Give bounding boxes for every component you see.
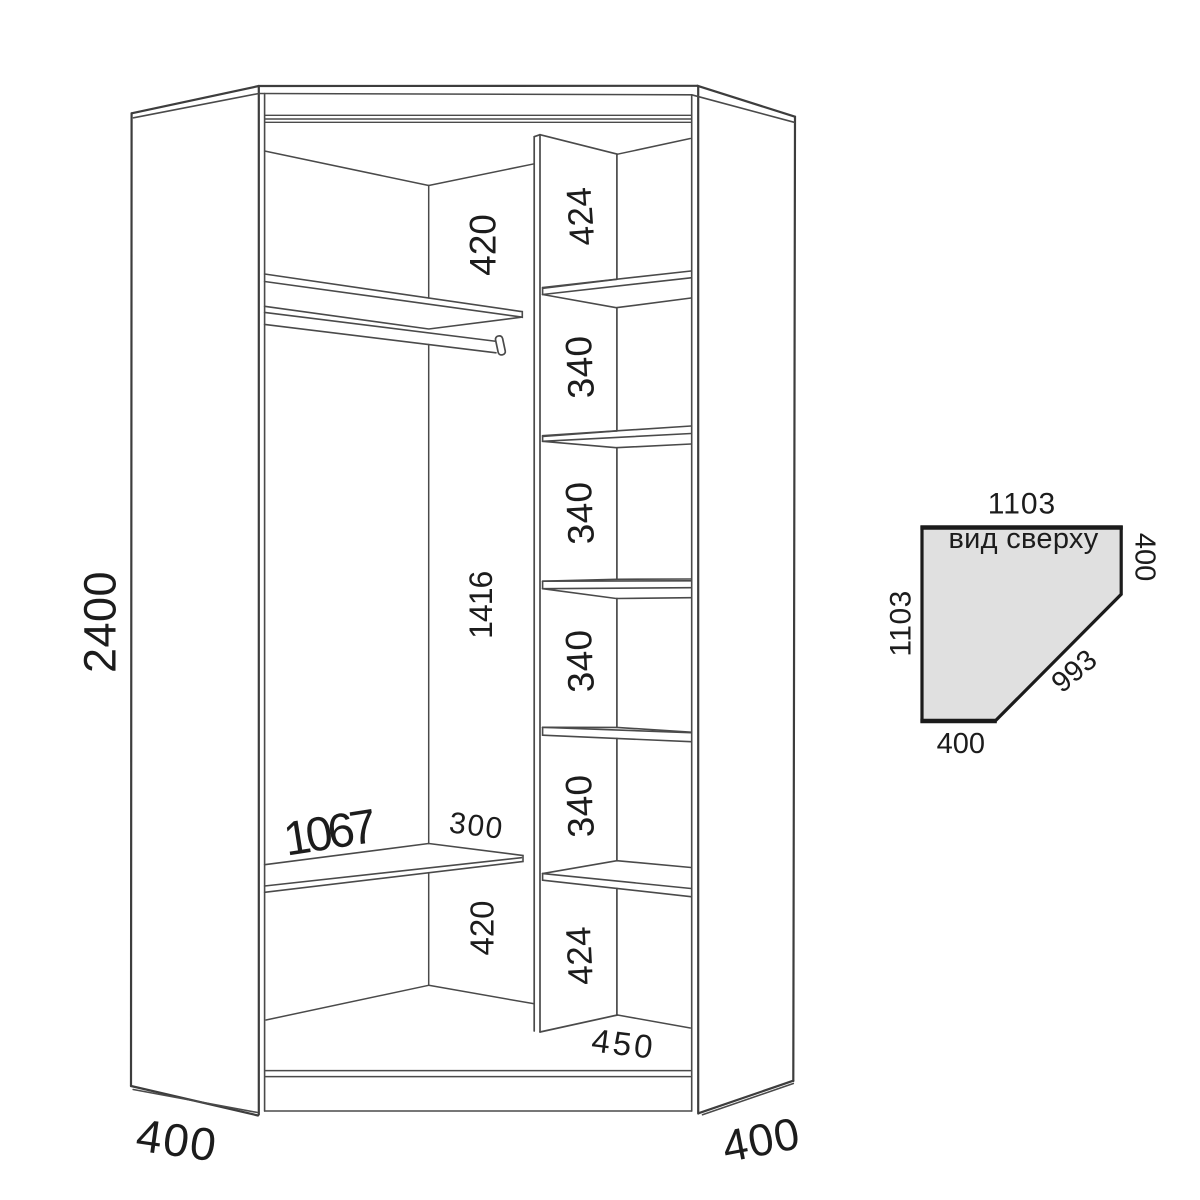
svg-text:340: 340	[558, 334, 602, 399]
svg-text:1103: 1103	[885, 590, 918, 657]
svg-text:300: 300	[447, 806, 505, 845]
svg-text:вид сверху: вид сверху	[948, 523, 1098, 555]
svg-text:424: 424	[559, 926, 601, 986]
svg-text:450: 450	[590, 1021, 658, 1066]
svg-text:420: 420	[464, 900, 501, 955]
svg-text:1416: 1416	[463, 572, 499, 639]
svg-text:420: 420	[463, 214, 504, 276]
svg-text:340: 340	[558, 773, 602, 838]
svg-text:424: 424	[560, 186, 603, 247]
svg-text:400: 400	[937, 728, 985, 760]
svg-text:2400: 2400	[75, 571, 126, 673]
svg-text:340: 340	[558, 480, 602, 545]
svg-text:400: 400	[1129, 533, 1161, 581]
svg-text:1103: 1103	[988, 488, 1057, 521]
svg-text:340: 340	[558, 628, 602, 693]
